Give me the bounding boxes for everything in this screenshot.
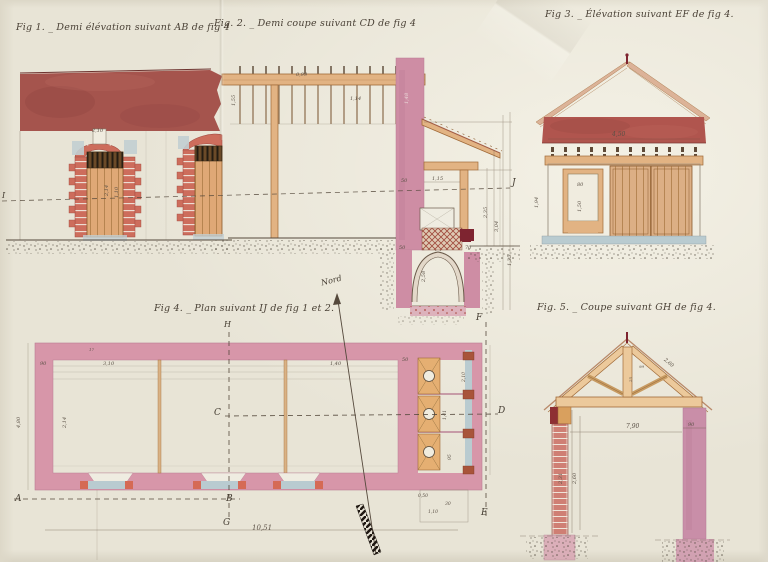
dim-label: 50 xyxy=(401,178,407,184)
dim-label: 1,50 xyxy=(577,201,583,212)
section-letter-c: C xyxy=(214,408,221,418)
dim-label: 70 xyxy=(465,245,471,251)
dim-label: 2,58 xyxy=(421,271,427,282)
dim-label: 50 xyxy=(402,357,408,363)
drawing-canvas xyxy=(0,0,768,562)
dim-label: 25 xyxy=(628,377,633,382)
dim-label: 2,14 xyxy=(104,185,110,196)
fig2-dark-red-block xyxy=(460,229,474,241)
fig4-title: Fig 4. _ Plan suivant IJ de fig 1 et 2. xyxy=(154,303,334,314)
north-arrow xyxy=(333,293,381,555)
dim-label: 50 xyxy=(399,245,405,251)
section-letter-h: H xyxy=(224,320,231,329)
section-line-cd xyxy=(225,414,498,416)
fig4-plan xyxy=(14,293,498,560)
fig2-demi-coupe xyxy=(215,58,520,325)
dim-label: 1,55 xyxy=(231,95,237,106)
fig5-coupe xyxy=(520,332,730,562)
fig2-title: Fig. 2. _ Demi coupe suivant CD de fig 4 xyxy=(214,18,416,29)
section-letter-e: E xyxy=(481,508,488,518)
dim-label: 10,51 xyxy=(252,524,272,532)
fig1-door-2 xyxy=(177,134,224,240)
dim-label: 1,10 xyxy=(428,510,438,515)
dim-label: 1,35 xyxy=(507,255,513,266)
fig5-tie-beam xyxy=(556,397,702,407)
dim-label: 2,35 xyxy=(483,207,489,218)
dim-label: 2,10 xyxy=(462,372,467,382)
section-letter-a: A xyxy=(15,494,22,504)
dim-label: 2,60 xyxy=(572,473,578,484)
section-letter-f: F xyxy=(476,313,482,323)
dim-label: 1,94 xyxy=(534,197,540,208)
fig1-title: Fig 1. _ Demi élévation suivant AB de fi… xyxy=(16,22,230,33)
dim-label: 17 xyxy=(89,347,94,352)
dim-label: 1,15 xyxy=(432,176,443,182)
section-letter-i: I xyxy=(2,191,5,200)
dim-label: 3,04 xyxy=(494,221,500,232)
dim-label: 1,41 xyxy=(443,410,448,420)
section-letter-b: B xyxy=(226,494,233,504)
dim-label: 99 xyxy=(639,364,644,369)
dim-label: 95 xyxy=(448,454,453,460)
dim-label: 2,14 xyxy=(62,417,68,428)
dim-label: 2,10 xyxy=(92,128,103,134)
fig3-elevation xyxy=(530,53,716,259)
dim-label: 1,48 xyxy=(404,93,410,104)
fig3-title: Fig 3. _ Élévation suivant EF de fig 4. xyxy=(545,9,734,20)
dim-label: 7,90 xyxy=(626,423,639,430)
dim-label: 30 xyxy=(445,502,451,507)
dim-label: 90 xyxy=(688,422,694,428)
section-letter-d: D xyxy=(498,406,505,416)
dim-label: 3,10 xyxy=(103,361,114,367)
dim-label: 1,10 xyxy=(114,187,120,198)
dim-label: 0,99 xyxy=(296,72,307,78)
dim-label: 4,50 xyxy=(612,131,625,138)
dim-label: 1,40 xyxy=(330,361,341,367)
dim-label: 4,80 xyxy=(16,417,22,428)
dim-label: 1,14 xyxy=(350,96,361,102)
dim-label: 90 xyxy=(40,361,46,367)
fig5-title: Fig. 5. _ Coupe suivant GH de fig 4. xyxy=(537,302,716,313)
fig1-demi-elevation xyxy=(6,69,232,254)
dim-label: 80 xyxy=(577,182,583,188)
dim-label: 0,50 xyxy=(418,494,428,499)
section-letter-g: G xyxy=(223,518,230,528)
section-letter-j: J xyxy=(512,178,516,188)
dim-label: 2,31 xyxy=(558,473,564,484)
drawing-sheet: Fig 1. _ Demi élévation suivant AB de fi… xyxy=(0,0,768,562)
fig3-sill xyxy=(542,236,706,244)
